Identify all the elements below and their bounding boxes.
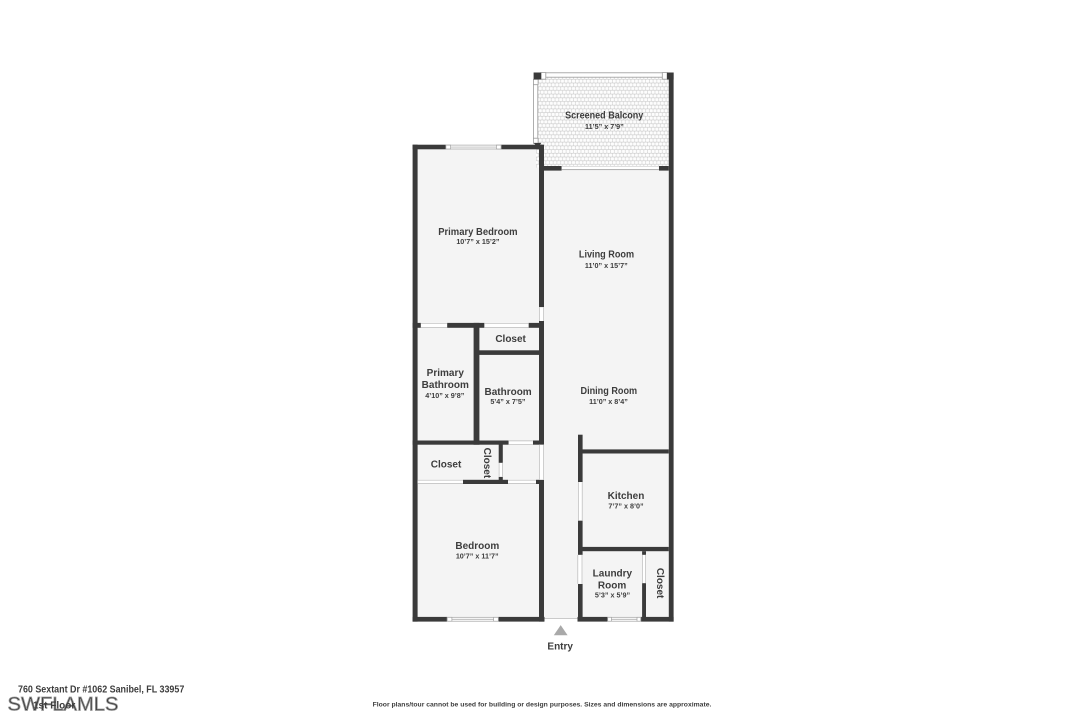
svg-text:11’5” x 7’9”: 11’5” x 7’9” — [585, 122, 624, 131]
svg-text:Closet: Closet — [481, 448, 492, 479]
svg-text:Laundry: Laundry — [593, 568, 633, 579]
svg-text:Bedroom: Bedroom — [455, 541, 499, 552]
svg-text:Floor plans/tour cannot be use: Floor plans/tour cannot be used for buil… — [373, 702, 712, 709]
svg-text:11’0” x 8’4”: 11’0” x 8’4” — [589, 397, 628, 406]
svg-text:Closet: Closet — [654, 568, 665, 599]
svg-text:Primary Bedroom: Primary Bedroom — [438, 227, 517, 238]
svg-text:Primary: Primary — [427, 368, 465, 379]
svg-text:Entry: Entry — [547, 642, 573, 653]
svg-text:Dining Room: Dining Room — [581, 386, 638, 397]
svg-text:4’10” x 9’8”: 4’10” x 9’8” — [425, 391, 465, 400]
svg-text:1st Floor: 1st Floor — [33, 701, 75, 712]
svg-text:10’7” x 15’2”: 10’7” x 15’2” — [456, 237, 500, 246]
svg-text:Closet: Closet — [431, 460, 462, 471]
svg-text:5’3” x 5’9”: 5’3” x 5’9” — [595, 590, 631, 599]
svg-text:5’4” x 7’5”: 5’4” x 7’5” — [490, 397, 526, 406]
svg-text:7’7” x 8’0”: 7’7” x 8’0” — [608, 502, 644, 511]
svg-text:Closet: Closet — [495, 334, 526, 345]
svg-text:Screened Balcony: Screened Balcony — [565, 111, 644, 122]
svg-text:Kitchen: Kitchen — [608, 491, 645, 502]
svg-text:Bathroom: Bathroom — [422, 380, 469, 391]
svg-text:10’7” x 11’7”: 10’7” x 11’7” — [456, 552, 499, 561]
svg-text:11’0” x 15’7”: 11’0” x 15’7” — [585, 261, 628, 270]
svg-text:Living Room: Living Room — [579, 250, 634, 261]
